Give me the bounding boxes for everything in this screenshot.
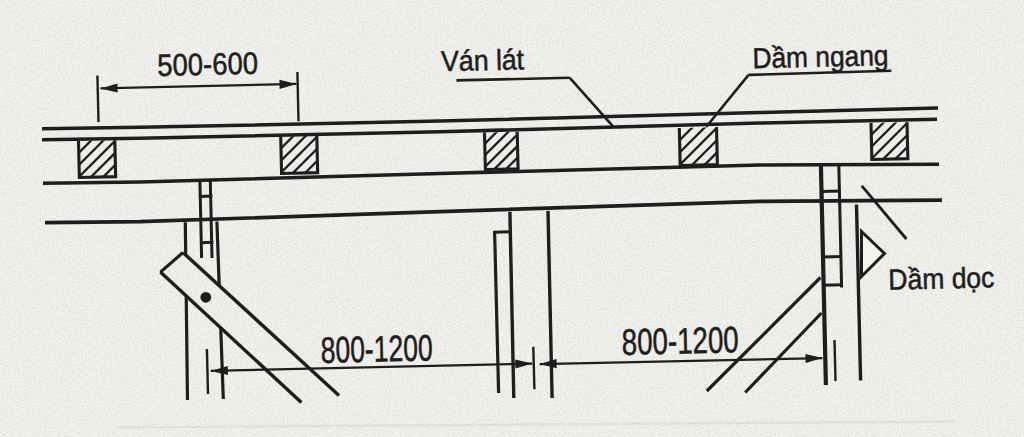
svg-text:Dầm ngang: Dầm ngang <box>752 39 889 74</box>
svg-text:800-1200: 800-1200 <box>621 319 739 363</box>
svg-text:800-1200: 800-1200 <box>320 327 433 371</box>
svg-text:Dầm dọc: Dầm dọc <box>888 261 995 295</box>
svg-text:500-600: 500-600 <box>157 46 258 83</box>
svg-text:Ván lát: Ván lát <box>441 43 525 77</box>
